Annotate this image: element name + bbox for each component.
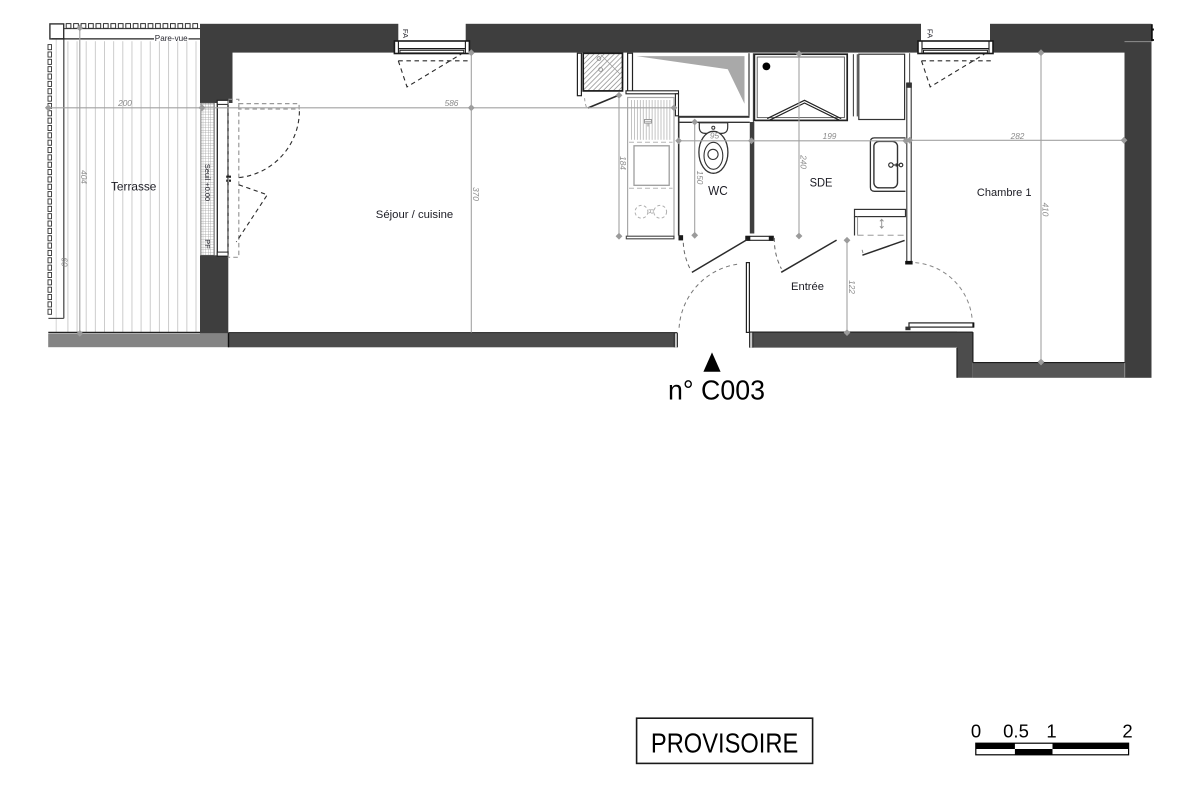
svg-text:0: 0 [971, 721, 981, 742]
svg-text:240: 240 [799, 154, 809, 169]
svg-text:Entrée: Entrée [791, 281, 824, 293]
svg-text:Pare-vue: Pare-vue [155, 33, 188, 43]
svg-text:410: 410 [1040, 203, 1050, 217]
svg-text:0.5: 0.5 [1003, 721, 1029, 742]
svg-text:2: 2 [1122, 721, 1132, 742]
svg-text:Terrasse: Terrasse [111, 179, 157, 193]
svg-text:FA: FA [926, 29, 935, 39]
svg-text:370: 370 [471, 187, 481, 201]
svg-text:R: R [647, 209, 656, 214]
svg-text:Chambre 1: Chambre 1 [977, 187, 1032, 199]
svg-text:150: 150 [695, 171, 705, 185]
svg-text:Seuil +0.00: Seuil +0.00 [203, 164, 212, 201]
svg-text:95: 95 [710, 130, 720, 140]
svg-text:n° C003: n° C003 [668, 375, 765, 406]
svg-text:PROVISOIRE: PROVISOIRE [651, 728, 798, 759]
svg-text:60: 60 [60, 257, 70, 267]
svg-text:Séjour / cuisine: Séjour / cuisine [376, 209, 453, 221]
svg-text:184: 184 [618, 156, 628, 170]
svg-text:199: 199 [823, 131, 837, 141]
svg-text:586: 586 [445, 98, 459, 108]
svg-text:1: 1 [1046, 721, 1056, 742]
svg-text:FA: FA [401, 29, 410, 39]
svg-text:WC: WC [708, 184, 728, 198]
svg-text:SDE: SDE [810, 176, 833, 190]
svg-text:PF: PF [203, 239, 212, 249]
svg-text:200: 200 [117, 98, 132, 108]
svg-text:404: 404 [79, 170, 89, 184]
svg-text:122: 122 [847, 280, 857, 294]
svg-text:282: 282 [1010, 131, 1025, 141]
